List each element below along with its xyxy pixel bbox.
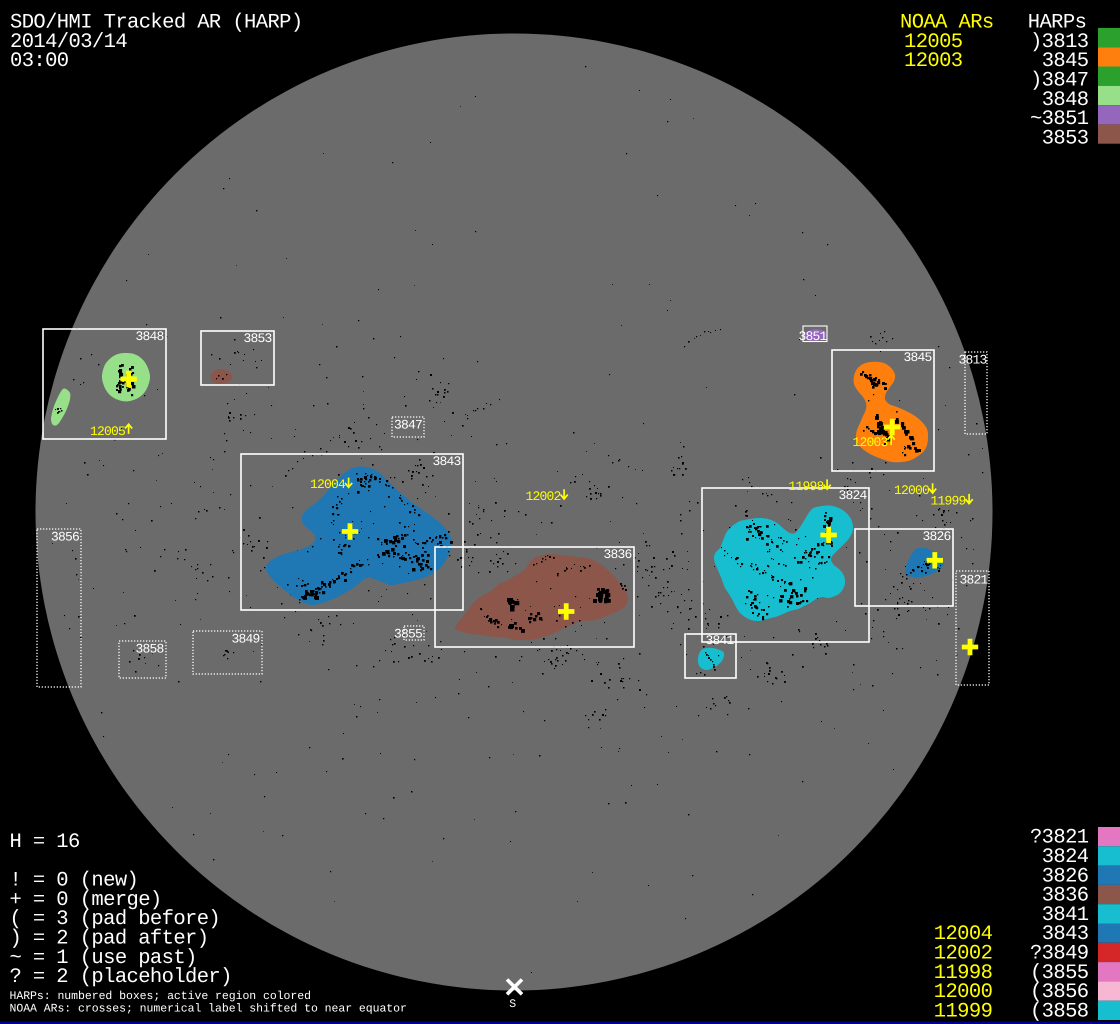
svg-text:11999: 11999 — [934, 1000, 993, 1023]
svg-text:12002: 12002 — [526, 489, 561, 504]
svg-text:3856: 3856 — [51, 529, 79, 544]
svg-text:12000: 12000 — [894, 483, 929, 498]
svg-text:11998: 11998 — [789, 479, 824, 494]
svg-text:3853: 3853 — [1042, 127, 1089, 150]
svg-text:S: S — [509, 998, 516, 1011]
svg-text:3813: 3813 — [958, 353, 986, 368]
svg-text:(3858: (3858 — [1030, 1000, 1089, 1023]
svg-text:H = 16: H = 16 — [10, 831, 80, 854]
svg-text:12003: 12003 — [853, 435, 888, 450]
svg-text:3858: 3858 — [135, 641, 163, 656]
svg-text:3841: 3841 — [705, 633, 734, 648]
svg-text:11999: 11999 — [931, 494, 966, 509]
svg-text:3845: 3845 — [903, 350, 931, 365]
svg-text:3853: 3853 — [243, 331, 271, 346]
svg-text:HARPs: numbered boxes; active: HARPs: numbered boxes; active region col… — [10, 990, 311, 1003]
svg-text:3821: 3821 — [959, 572, 988, 587]
svg-text:3843: 3843 — [432, 454, 460, 469]
svg-text:3855: 3855 — [394, 627, 422, 642]
svg-text:NOAA ARs: crosses; numerical l: NOAA ARs: crosses; numerical label shift… — [10, 1002, 407, 1015]
svg-text:3848: 3848 — [135, 329, 163, 344]
svg-text:12004: 12004 — [310, 477, 346, 492]
svg-text:3824: 3824 — [838, 488, 867, 503]
svg-text:3836: 3836 — [603, 547, 631, 562]
svg-text:3851: 3851 — [798, 329, 827, 344]
svg-text:? = 2 (placeholder): ? = 2 (placeholder) — [10, 966, 232, 989]
svg-text:03:00: 03:00 — [10, 50, 69, 73]
svg-text:3826: 3826 — [922, 529, 950, 544]
svg-text:12003: 12003 — [904, 50, 963, 73]
svg-text:12005: 12005 — [90, 424, 125, 439]
svg-text:3849: 3849 — [231, 631, 259, 646]
svg-text:3847: 3847 — [394, 417, 422, 432]
